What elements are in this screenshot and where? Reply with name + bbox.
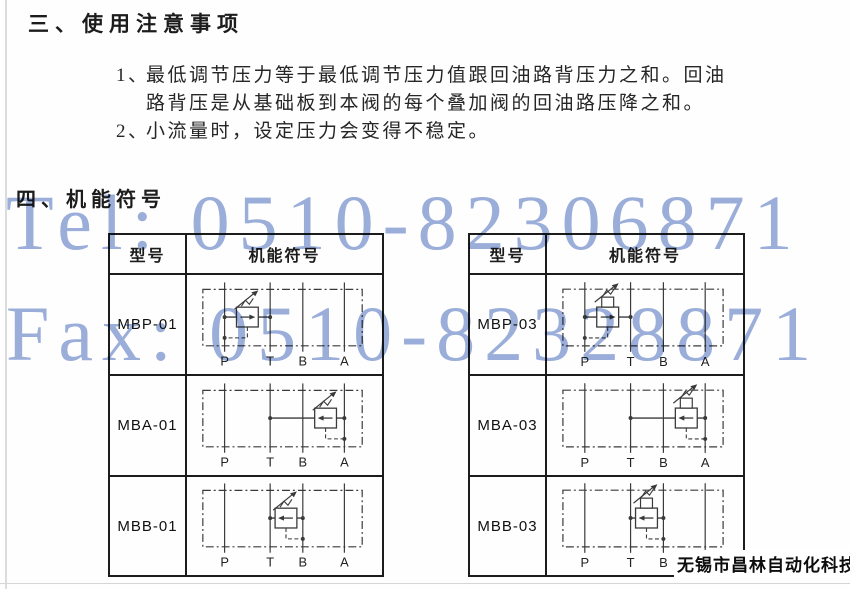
model-cell: MBP-01 <box>110 275 187 374</box>
junction-dot <box>223 335 227 339</box>
model-label: MBA-03 <box>477 417 537 434</box>
hydraulic-symbol-diagram: PTBA <box>187 276 382 374</box>
header-model: 型号 <box>470 235 547 273</box>
model-label: MBB-03 <box>477 518 537 535</box>
note-1-number: 1、 <box>116 60 150 87</box>
table-row: MBP-03PTBA <box>470 273 743 374</box>
footer-company-name: 无锡市昌林自动化科技 <box>674 550 850 577</box>
table-row: MBA-03PTBA <box>470 374 743 475</box>
table-row: MBA-01PTBA <box>110 374 382 475</box>
port-label: B <box>659 454 668 469</box>
port-label: P <box>220 353 229 368</box>
header-symbol: 机能符号 <box>187 235 382 273</box>
table-header-row: 型号机能符号 <box>110 235 382 273</box>
scan-edge-left <box>5 0 7 589</box>
port-label: T <box>266 454 274 469</box>
port-label: B <box>299 353 308 368</box>
symbol-cell: PTBA <box>187 376 382 475</box>
model-cell: MBB-01 <box>110 477 187 575</box>
port-label: A <box>340 353 349 368</box>
junction-dot <box>703 436 707 440</box>
port-label: P <box>220 555 229 570</box>
model-cell: MBA-01 <box>110 376 187 475</box>
table-row: MBP-01PTBA <box>110 273 382 374</box>
pilot-drain-line <box>286 528 303 539</box>
symbol-cell: PTBA <box>547 376 743 475</box>
port-label: T <box>627 454 635 469</box>
model-cell: MBA-03 <box>470 376 547 475</box>
port-label: B <box>299 454 308 469</box>
hydraulic-symbol-diagram: PTBA <box>547 276 743 374</box>
model-label: MBP-01 <box>117 316 177 333</box>
table-header-row: 型号机能符号 <box>470 235 743 273</box>
junction-dot <box>342 436 346 440</box>
symbol-cell: PTBA <box>187 275 382 374</box>
header-model: 型号 <box>110 235 187 273</box>
pilot-drain-line <box>326 427 345 438</box>
section-usage-notes-title: 三、使用注意事项 <box>28 8 244 38</box>
model-cell: MBP-03 <box>470 275 547 374</box>
header-symbol: 机能符号 <box>547 235 743 273</box>
pilot-drain-line <box>646 528 663 539</box>
junction-dot <box>661 537 665 541</box>
port-label: P <box>580 555 589 570</box>
hydraulic-symbol-diagram: PTBA <box>187 377 382 475</box>
port-label: A <box>340 555 349 570</box>
scan-edge-bottom <box>0 583 850 584</box>
junction-dot <box>223 315 227 319</box>
junction-dot <box>268 416 272 420</box>
junction-dot <box>268 516 272 520</box>
datasheet-page: 三、使用注意事项 1、 最低调节压力等于最低调节压力值跟回油路背压力之和。回油 … <box>0 0 850 589</box>
symbol-cell: PTBA <box>187 477 382 575</box>
port-label: P <box>580 353 589 368</box>
model-label: MBA-01 <box>117 417 177 434</box>
pilot-drain-line <box>585 326 608 337</box>
junction-dot <box>629 315 633 319</box>
model-cell: MBB-03 <box>470 477 547 575</box>
spring-cap <box>602 297 614 307</box>
junction-dot <box>629 416 633 420</box>
symbol-table-left: 型号机能符号MBP-01PTBAMBA-01PTBAMBB-01PTBA <box>108 233 384 577</box>
symbol-cell: PTBA <box>547 275 743 374</box>
pilot-drain-line <box>225 326 248 337</box>
port-label: T <box>266 555 274 570</box>
spring-cap <box>641 498 653 508</box>
note-2-line-1: 小流量时，设定压力会变得不稳定。 <box>146 116 490 143</box>
junction-dot <box>583 335 587 339</box>
junction-dot <box>703 416 707 420</box>
port-label: A <box>701 454 710 469</box>
junction-dot <box>268 315 272 319</box>
junction-dot <box>342 416 346 420</box>
port-label: B <box>659 353 668 368</box>
model-label: MBB-01 <box>117 518 177 535</box>
hydraulic-symbol-diagram: PTBA <box>187 477 382 575</box>
port-label: T <box>627 353 635 368</box>
symbol-table-right: 型号机能符号MBP-03PTBAMBA-03PTBAMBB-03PTBA <box>468 233 745 577</box>
pilot-drain-line <box>686 427 705 438</box>
note-2-number: 2、 <box>116 116 150 143</box>
port-label: B <box>659 555 668 570</box>
junction-dot <box>301 537 305 541</box>
note-1-line-1: 最低调节压力等于最低调节压力值跟回油路背压力之和。回油 <box>146 60 727 87</box>
hydraulic-symbol-diagram: PTBA <box>547 377 743 475</box>
port-label: A <box>340 454 349 469</box>
port-label: P <box>220 454 229 469</box>
junction-dot <box>661 516 665 520</box>
section-function-symbols-title: 四、机能符号 <box>16 183 166 212</box>
junction-dot <box>629 516 633 520</box>
port-label: A <box>701 353 710 368</box>
port-label: T <box>266 353 274 368</box>
note-1-line-2: 路背压是从基础板到本阀的每个叠加阀的回油路压降之和。 <box>146 88 705 115</box>
spring-cap <box>680 398 692 408</box>
model-label: MBP-03 <box>477 316 537 333</box>
junction-dot <box>583 315 587 319</box>
junction-dot <box>301 516 305 520</box>
port-label: T <box>627 555 635 570</box>
port-label: P <box>580 454 589 469</box>
port-label: B <box>299 555 308 570</box>
table-row: MBB-01PTBA <box>110 475 382 575</box>
